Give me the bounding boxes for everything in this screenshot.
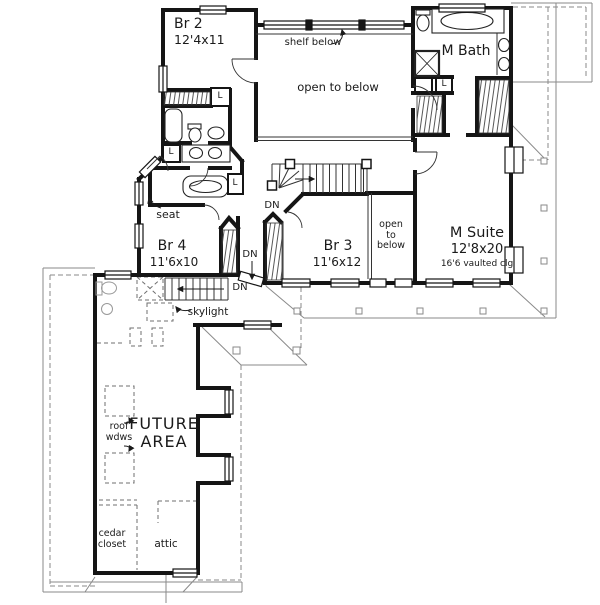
toilet-tank (416, 10, 430, 15)
interior-lines (256, 33, 497, 280)
sink (190, 148, 203, 159)
future-fixtures (96, 282, 117, 315)
wall-post (359, 20, 365, 30)
shelf-below-arrow (331, 30, 343, 44)
roof-window-arrow (124, 418, 130, 423)
stairs-lower (165, 278, 228, 300)
stairs-main (268, 160, 372, 194)
bathtub-hall-bath (165, 109, 182, 142)
bathtub-inner (190, 181, 222, 193)
sink (499, 58, 510, 71)
master-tub (441, 13, 493, 30)
floor-plan-drawing (0, 0, 600, 605)
floor-plan-page: Br 2 12'4x11 shelf below open to below M… (0, 0, 600, 605)
sink (209, 148, 222, 159)
sink (499, 39, 510, 52)
wall-post (306, 20, 312, 30)
roof-window-arrow (124, 446, 130, 451)
toilet-bowl (417, 15, 429, 31)
future-area-dashed (97, 277, 198, 570)
skylight-arrow (176, 307, 191, 311)
sink (208, 127, 224, 139)
toilet-bowl (189, 128, 201, 142)
